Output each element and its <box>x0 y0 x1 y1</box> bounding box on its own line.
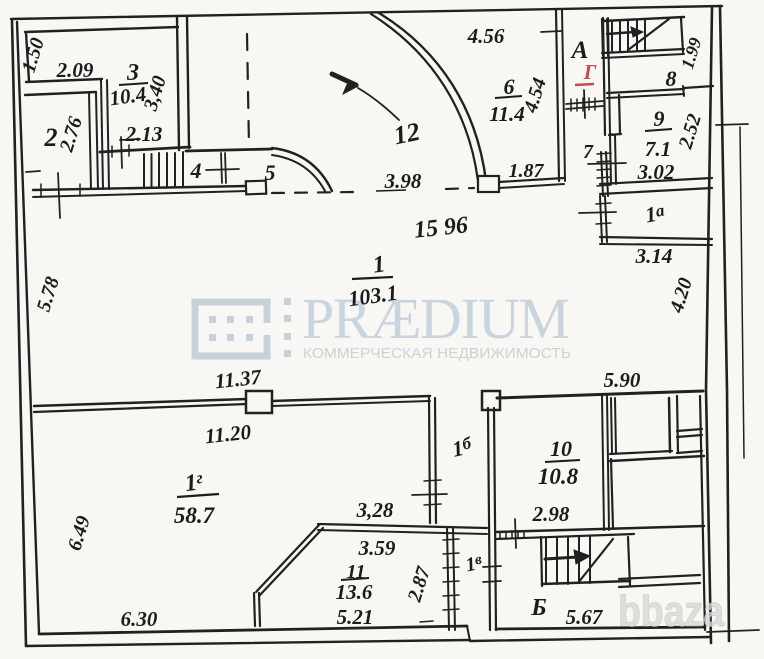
svg-text:11.4: 11.4 <box>489 102 525 126</box>
svg-text:Г: Г <box>583 60 597 84</box>
svg-text:3.02: 3.02 <box>637 160 675 184</box>
svg-text:7.1: 7.1 <box>645 137 671 161</box>
svg-text:11.20: 11.20 <box>204 420 253 449</box>
svg-text:1.87: 1.87 <box>509 160 545 182</box>
svg-text:2.98: 2.98 <box>532 502 570 526</box>
svg-text:8: 8 <box>666 66 677 91</box>
svg-text:58.7: 58.7 <box>174 503 216 528</box>
svg-text:4: 4 <box>190 158 202 183</box>
svg-text:bbaza: bbaza <box>618 587 724 636</box>
svg-text:5.90: 5.90 <box>604 368 641 392</box>
svg-text:2.09: 2.09 <box>56 58 94 82</box>
svg-text:9: 9 <box>654 106 665 131</box>
svg-text:7: 7 <box>583 141 594 163</box>
svg-text:5.67: 5.67 <box>566 605 604 629</box>
svg-text:11.37: 11.37 <box>214 365 264 394</box>
svg-text:3.59: 3.59 <box>358 536 396 560</box>
svg-text:КОММЕРЧЕСКАЯ НЕДВИЖИМОСТЬ: КОММЕРЧЕСКАЯ НЕДВИЖИМОСТЬ <box>303 346 571 362</box>
svg-text:4.56: 4.56 <box>467 24 505 48</box>
svg-text:5: 5 <box>265 160 276 185</box>
svg-text:5.21: 5.21 <box>337 605 374 629</box>
svg-text:PRÆDIUM: PRÆDIUM <box>302 286 570 351</box>
svg-text:3,28: 3,28 <box>356 498 394 522</box>
svg-text:10: 10 <box>550 436 572 461</box>
svg-text:6.30: 6.30 <box>121 607 158 631</box>
svg-text:Б: Б <box>530 595 546 621</box>
svg-text:10.8: 10.8 <box>538 464 579 489</box>
svg-text:3.14: 3.14 <box>635 244 673 268</box>
svg-text:6: 6 <box>504 74 515 99</box>
svg-text:2.13: 2.13 <box>125 122 163 146</box>
svg-text:13.6: 13.6 <box>336 580 373 604</box>
